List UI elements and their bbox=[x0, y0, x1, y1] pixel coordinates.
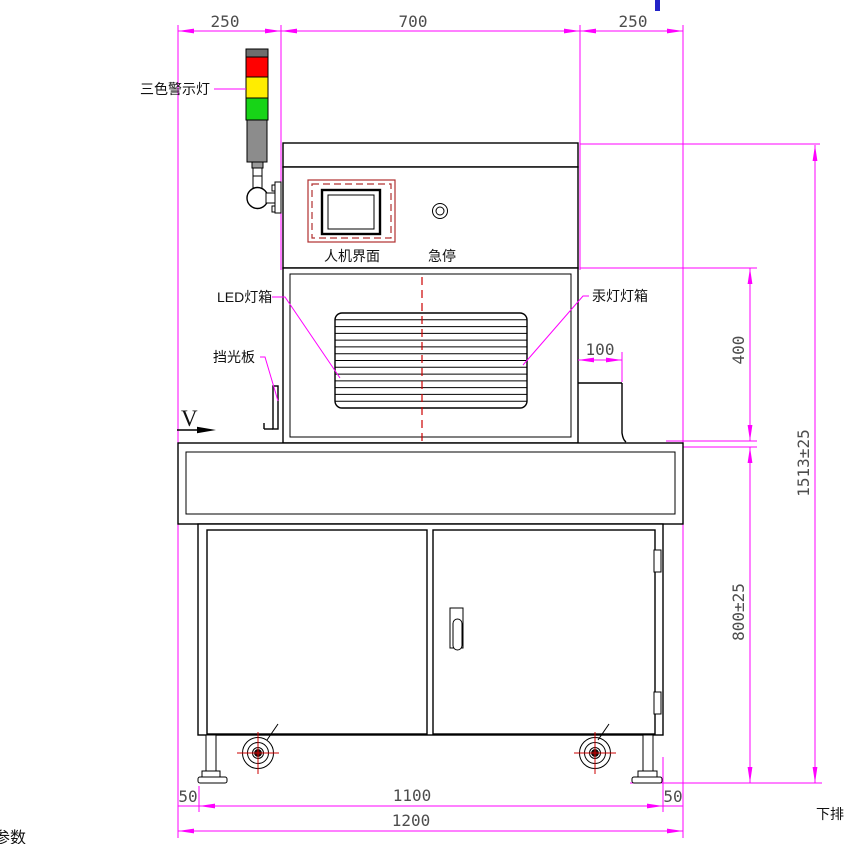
tower-neck bbox=[252, 162, 263, 168]
dim-overall-width: 1200 bbox=[392, 811, 431, 830]
label-tower-light: 三色警示灯 bbox=[140, 81, 210, 97]
view-marker-letter: V bbox=[181, 406, 198, 431]
tower-light bbox=[246, 49, 281, 213]
engineering-drawing: 250 700 250 100 400 800±25 1513±25 1100 … bbox=[0, 0, 853, 844]
dim-upper-height: 400 bbox=[729, 336, 748, 365]
label-bottom-right-note: 下排 bbox=[816, 806, 844, 822]
dim-overall-height: 1513±25 bbox=[794, 429, 813, 496]
label-mercury-lightbox: 汞灯灯箱 bbox=[592, 288, 648, 304]
dim-margin-right: 50 bbox=[663, 787, 682, 806]
leveling-foot-right bbox=[632, 735, 662, 783]
label-led-lightbox: LED灯箱 bbox=[217, 289, 272, 305]
view-direction-arrow bbox=[197, 427, 216, 433]
tower-stem bbox=[253, 168, 262, 188]
machine-top-cap bbox=[283, 143, 578, 167]
lamp-housing-outer bbox=[283, 268, 578, 443]
tower-cap bbox=[246, 49, 268, 57]
door-handle bbox=[450, 608, 463, 650]
dim-table-height: 800±25 bbox=[729, 583, 748, 641]
label-hmi: 人机界面 bbox=[324, 248, 380, 264]
drawing-canvas: 250 700 250 100 400 800±25 1513±25 1100 … bbox=[0, 0, 853, 844]
dim-top-right: 250 bbox=[619, 12, 648, 31]
tower-segment-yellow bbox=[246, 77, 268, 98]
dim-inner-span: 1100 bbox=[393, 786, 432, 805]
dim-bracket-width: 100 bbox=[586, 340, 615, 359]
hmi-screen-frame[interactable] bbox=[322, 190, 380, 234]
tower-ball-joint bbox=[247, 188, 268, 209]
label-bottom-left-partial: 参数 bbox=[0, 829, 26, 844]
blue-mark bbox=[655, 0, 660, 11]
leveling-foot-left bbox=[198, 735, 227, 783]
dim-top-center: 700 bbox=[399, 12, 428, 31]
tower-mount-plate bbox=[275, 182, 281, 213]
dim-top-left: 250 bbox=[211, 12, 240, 31]
machine-structure bbox=[178, 143, 683, 783]
cabinet-body bbox=[198, 524, 663, 735]
tower-base-body bbox=[247, 120, 267, 162]
side-bracket bbox=[578, 383, 626, 442]
label-estop: 急停 bbox=[428, 248, 456, 264]
view-direction-marker: V bbox=[177, 406, 216, 433]
table-top bbox=[178, 443, 683, 524]
dim-margin-left: 50 bbox=[178, 787, 197, 806]
tower-segment-green bbox=[246, 98, 268, 120]
label-light-shield: 挡光板 bbox=[213, 349, 255, 365]
tower-segment-red bbox=[246, 57, 268, 77]
